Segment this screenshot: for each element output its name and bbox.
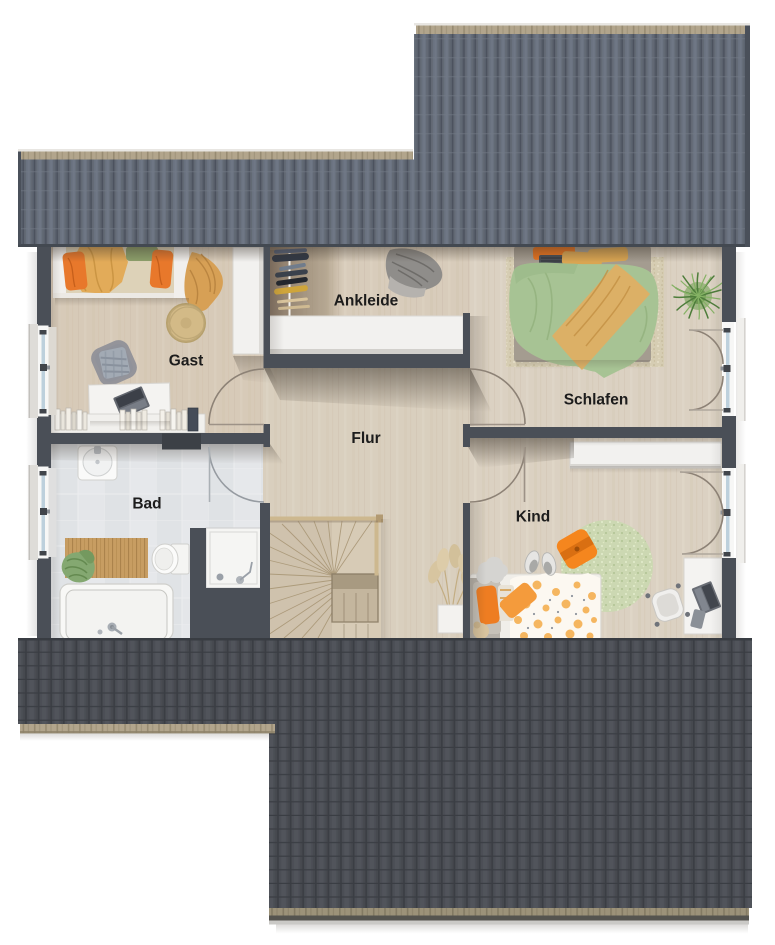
svg-text:Flur: Flur: [351, 430, 380, 447]
svg-text:Bad: Bad: [132, 496, 161, 513]
svg-text:Kind: Kind: [516, 509, 550, 526]
svg-text:Gast: Gast: [169, 353, 203, 370]
svg-text:Ankleide: Ankleide: [334, 293, 399, 310]
svg-text:Schlafen: Schlafen: [564, 392, 629, 409]
